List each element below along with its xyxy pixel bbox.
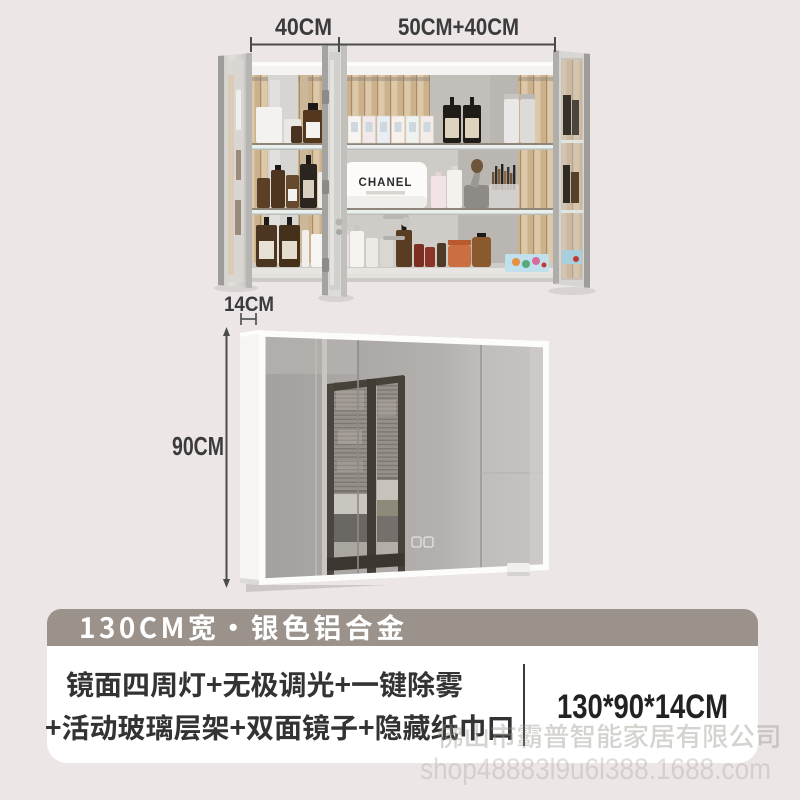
svg-text:40CM: 40CM [275, 14, 332, 41]
svg-text:90CM: 90CM [172, 431, 224, 461]
svg-text:CHANEL: CHANEL [359, 177, 413, 189]
svg-text:50CM+40CM: 50CM+40CM [398, 14, 519, 41]
svg-text:14CM: 14CM [224, 293, 274, 316]
svg-text:130*90*14CM: 130*90*14CM [557, 688, 728, 726]
svg-text:shop48883l9u6l388.1688.com: shop48883l9u6l388.1688.com [420, 753, 771, 786]
